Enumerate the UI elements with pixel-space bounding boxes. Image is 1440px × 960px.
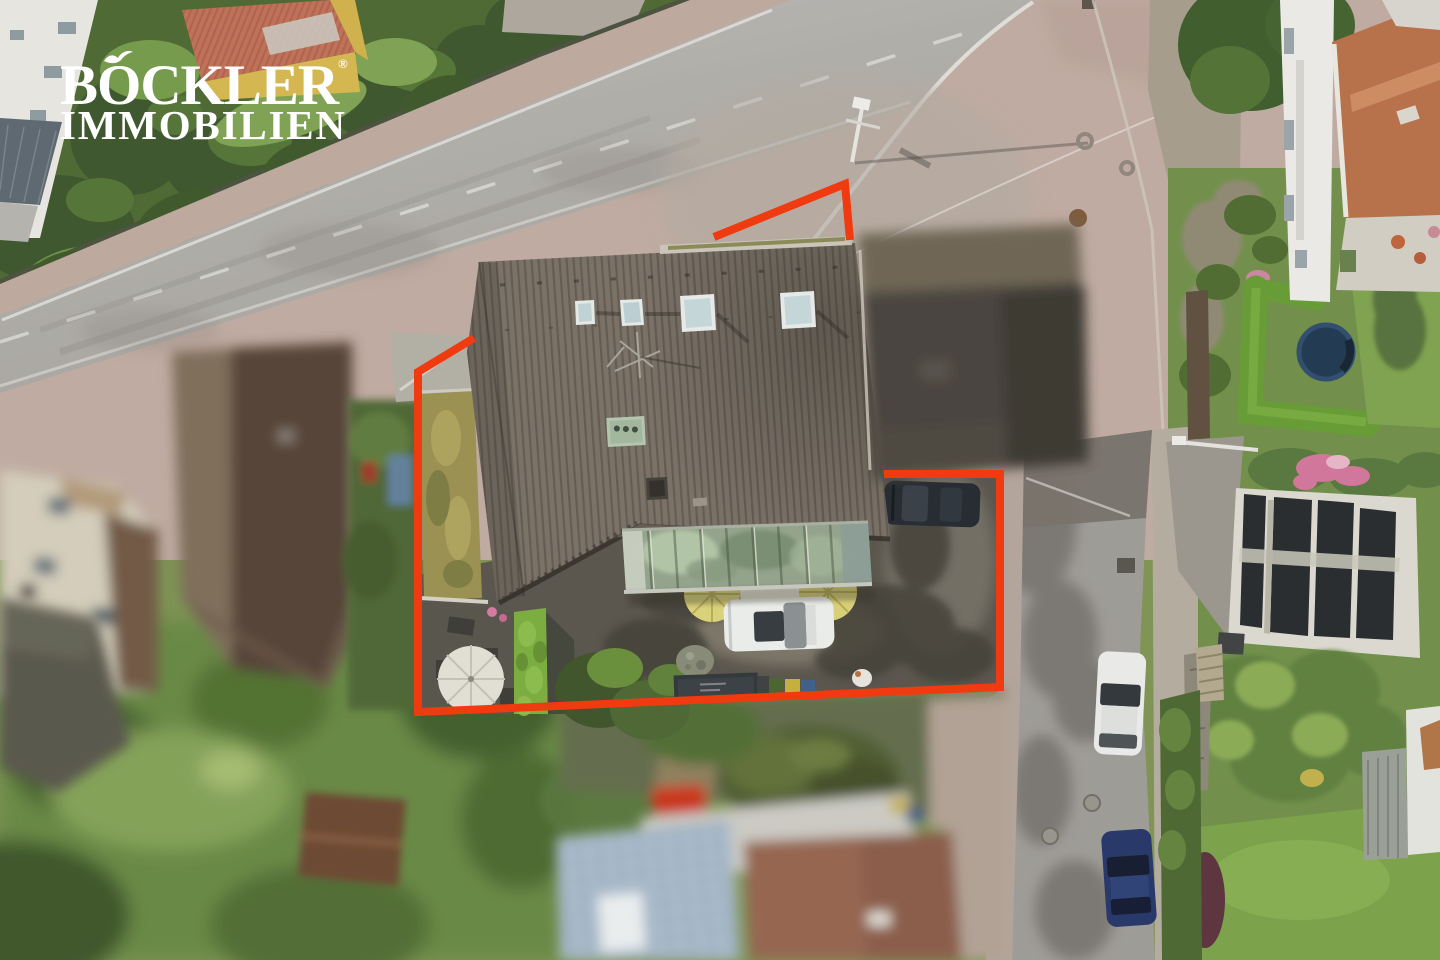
- svg-text:IMMOBILIEN: IMMOBILIEN: [60, 102, 345, 148]
- svg-text:®: ®: [338, 56, 348, 71]
